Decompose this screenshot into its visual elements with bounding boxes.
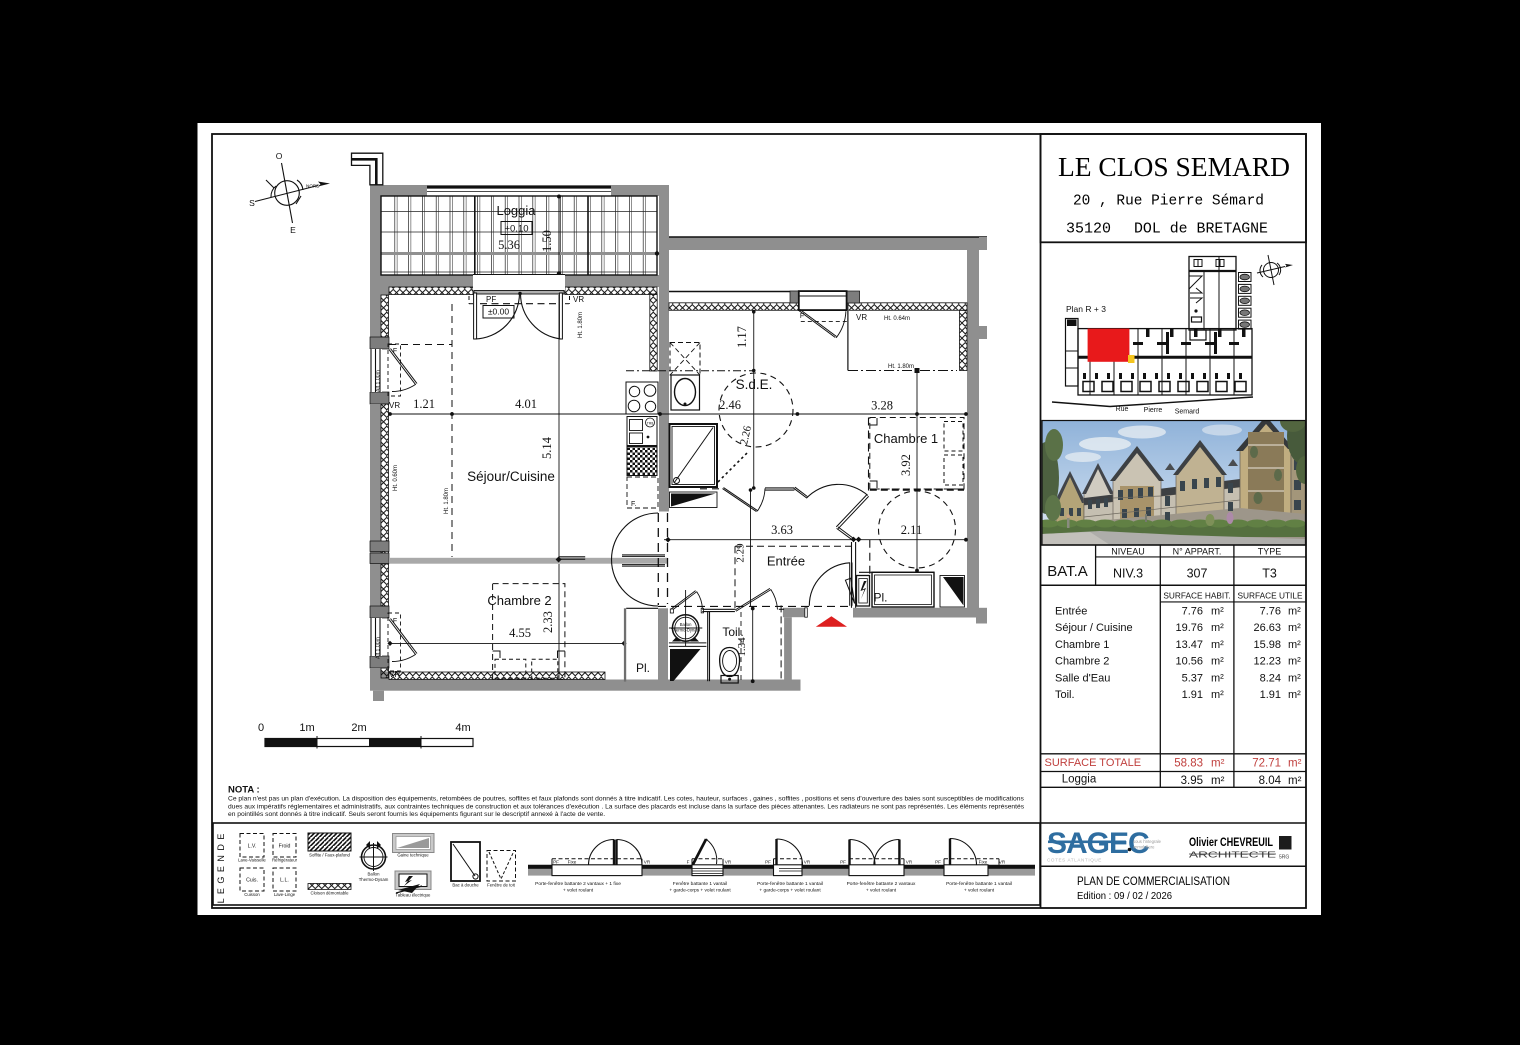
svg-text:ARCHITECTE: ARCHITECTE: [1189, 850, 1277, 860]
svg-text:Plan R + 3: Plan R + 3: [1066, 304, 1106, 314]
svg-text:NORD: NORD: [306, 184, 320, 189]
svg-text:m²: m²: [1288, 606, 1301, 618]
svg-text:Chambre 2: Chambre 2: [487, 593, 551, 608]
svg-text:VR: VR: [644, 859, 651, 864]
svg-text:Thermo-Dynam: Thermo-Dynam: [671, 628, 701, 633]
svg-text:Gaine technique: Gaine technique: [397, 853, 429, 858]
svg-text:35120: 35120: [1066, 221, 1111, 238]
svg-text:Séjour / Cuisine: Séjour / Cuisine: [1055, 622, 1133, 634]
svg-text:F: F: [687, 859, 690, 864]
svg-text:58.83: 58.83: [1174, 758, 1203, 770]
svg-text:Lave-Vaisselle: Lave-Vaisselle: [238, 858, 266, 863]
svg-text:NIVEAU: NIVEAU: [1111, 547, 1145, 557]
svg-text:Porte-fenêtre battante 1 vanta: Porte-fenêtre battante 1 vantail: [946, 881, 1012, 887]
svg-text:4.55: 4.55: [509, 626, 531, 640]
svg-text:1.21: 1.21: [413, 397, 435, 411]
svg-text:Réfrigérateur: Réfrigérateur: [272, 858, 298, 863]
svg-text:m²: m²: [1211, 758, 1225, 770]
svg-text:m²: m²: [1211, 689, 1224, 701]
svg-text:m²: m²: [1211, 606, 1224, 618]
svg-text:Tableau électrique: Tableau électrique: [396, 893, 431, 898]
svg-text:3.95: 3.95: [1181, 775, 1203, 787]
svg-text:3.28: 3.28: [871, 399, 893, 413]
svg-text:Pl.: Pl.: [636, 661, 650, 675]
svg-text:8.24: 8.24: [1260, 672, 1281, 684]
svg-text:VR: VR: [389, 401, 400, 410]
svg-text:Olivier CHEVREUIL: Olivier CHEVREUIL: [1189, 835, 1273, 849]
svg-text:1.34: 1.34: [736, 637, 748, 657]
svg-text:Loggia: Loggia: [496, 203, 536, 218]
svg-text:NOTA :: NOTA :: [228, 785, 260, 796]
svg-text:F: F: [393, 618, 397, 625]
svg-text:Semard: Semard: [1175, 409, 1200, 416]
svg-text:m²: m²: [1211, 775, 1225, 787]
svg-text:TYPE: TYPE: [1258, 547, 1282, 557]
svg-text:Ht. 1.80m: Ht. 1.80m: [578, 312, 584, 338]
svg-text:2.29: 2.29: [735, 543, 747, 563]
svg-text:m²: m²: [1211, 672, 1224, 684]
svg-text:E: E: [290, 225, 296, 235]
svg-text:Alt.1.00m: Alt.1.00m: [376, 637, 382, 659]
svg-text:Fenêtre de toit: Fenêtre de toit: [487, 883, 516, 888]
svg-text:Porte-fenêtre battante 2 vanta: Porte-fenêtre battante 2 vantaux + 1 fix…: [535, 881, 621, 887]
svg-text:+ volet roulant: + volet roulant: [866, 888, 897, 894]
svg-text:Edition : 09 / 02 / 2026: Edition : 09 / 02 / 2026: [1077, 890, 1172, 902]
svg-text:5.14: 5.14: [540, 436, 554, 459]
svg-text:dues aux impératifs réglementa: dues aux impératifs réglementaires et ad…: [228, 803, 1025, 810]
svg-text:12.23: 12.23: [1253, 656, 1281, 668]
svg-text:m²: m²: [1288, 622, 1301, 634]
svg-text:Fixe: Fixe: [568, 859, 577, 864]
svg-text:1.91: 1.91: [1182, 689, 1203, 701]
svg-text:m²: m²: [1288, 639, 1301, 651]
svg-text:O: O: [276, 151, 283, 161]
svg-text:COTES ATLANTIQUE: COTES ATLANTIQUE: [1047, 858, 1102, 863]
svg-text:Thermo-Dysam: Thermo-Dysam: [359, 877, 389, 882]
svg-text:Salle d'Eau: Salle d'Eau: [1055, 672, 1110, 684]
svg-text:PF: PF: [840, 859, 846, 864]
svg-text:TR8: TR8: [647, 422, 654, 426]
svg-text:NIV.3: NIV.3: [1113, 567, 1143, 581]
svg-text:PLAN DE COMMERCIALISATION: PLAN DE COMMERCIALISATION: [1077, 876, 1230, 888]
svg-text:LE CLOS SEMARD: LE CLOS SEMARD: [1058, 152, 1290, 182]
svg-text:20 , Rue Pierre Sémard: 20 , Rue Pierre Sémard: [1073, 193, 1264, 210]
svg-text:Cloison démontable: Cloison démontable: [311, 891, 350, 896]
svg-text:10.56: 10.56: [1175, 656, 1203, 668]
svg-text:SURFACE TOTALE: SURFACE TOTALE: [1045, 757, 1142, 769]
svg-text:m²: m²: [1288, 775, 1302, 787]
svg-text:m²: m²: [1288, 672, 1301, 684]
svg-text:N° APPART.: N° APPART.: [1173, 547, 1222, 557]
svg-text:m²: m²: [1288, 689, 1301, 701]
svg-text:+ garde-corps + volet roulant: + garde-corps + volet roulant: [759, 888, 821, 894]
svg-text:Ht. 1.80m: Ht. 1.80m: [888, 364, 914, 370]
svg-text:+ garde-corps + volet roulant: + garde-corps + volet roulant: [669, 888, 731, 894]
svg-text:Entrée: Entrée: [1055, 606, 1087, 618]
svg-text:Loggia: Loggia: [1062, 774, 1097, 786]
svg-text:Ballon: Ballon: [368, 872, 381, 877]
svg-text:+ volet roulant: + volet roulant: [563, 888, 594, 894]
svg-text:2m: 2m: [351, 722, 366, 734]
svg-text:Rue: Rue: [1116, 406, 1129, 413]
svg-text:±0.00: ±0.00: [488, 307, 509, 317]
svg-text:Entrée: Entrée: [767, 554, 805, 569]
svg-text:1.91: 1.91: [1260, 689, 1281, 701]
svg-text:Fenêtre battante 1 vantail: Fenêtre battante 1 vantail: [673, 881, 727, 887]
svg-text:26.63: 26.63: [1253, 622, 1281, 634]
svg-text:L E G E N D E: L E G E N D E: [216, 833, 226, 904]
svg-text:Ht. 1.80m: Ht. 1.80m: [444, 488, 450, 514]
svg-text:VR: VR: [725, 859, 732, 864]
svg-text:Toil.: Toil.: [722, 625, 743, 639]
svg-text:Alt.1.00m: Alt.1.00m: [376, 370, 382, 392]
svg-text:S: S: [249, 198, 255, 208]
svg-text:19.76: 19.76: [1175, 622, 1203, 634]
svg-text:L.V.: L.V.: [248, 843, 257, 849]
svg-text:Chambre 1: Chambre 1: [874, 431, 938, 446]
svg-text:8.04: 8.04: [1259, 775, 1282, 787]
svg-text:m²: m²: [1211, 639, 1224, 651]
svg-text:Toil.: Toil.: [1055, 689, 1075, 701]
svg-text:VR: VR: [856, 313, 867, 322]
svg-text:PF: PF: [935, 859, 941, 864]
svg-text:Chambre 2: Chambre 2: [1055, 656, 1109, 668]
svg-text:F.: F.: [631, 501, 637, 508]
svg-text:immobiliere: immobiliere: [1133, 845, 1155, 850]
svg-text:Pierre: Pierre: [1144, 407, 1163, 414]
svg-text:en pointillés sont donnés à ti: en pointillés sont donnés à titre indica…: [228, 811, 605, 818]
svg-text:1.50: 1.50: [540, 230, 554, 252]
svg-text:T3: T3: [1262, 567, 1277, 581]
svg-text:15.98: 15.98: [1253, 639, 1281, 651]
svg-text:m²: m²: [1211, 622, 1224, 634]
svg-text:13.47: 13.47: [1175, 639, 1203, 651]
svg-text:3.92: 3.92: [899, 454, 913, 476]
svg-text:0: 0: [258, 722, 264, 734]
svg-text:2.46: 2.46: [719, 398, 741, 412]
svg-text:VR: VR: [906, 859, 913, 864]
svg-text:m²: m²: [1211, 656, 1224, 668]
svg-text:VR: VR: [573, 295, 584, 304]
svg-text:Porte-fenêtre battante 1 vanta: Porte-fenêtre battante 1 vantail: [757, 881, 823, 887]
svg-text:Soffite / Faux-plafond: Soffite / Faux-plafond: [309, 853, 350, 858]
svg-text:Pl.: Pl.: [873, 591, 887, 605]
svg-text:VR: VR: [999, 859, 1006, 864]
svg-text:Séjour/Cuisine: Séjour/Cuisine: [467, 469, 555, 484]
svg-text:Cuisson: Cuisson: [244, 892, 260, 897]
svg-text:3.63: 3.63: [771, 523, 793, 537]
svg-text:5.36: 5.36: [498, 238, 520, 252]
svg-text:2.11: 2.11: [901, 523, 922, 537]
svg-text:307: 307: [1187, 567, 1208, 581]
svg-text:4.01: 4.01: [515, 397, 537, 411]
svg-text:2.33: 2.33: [541, 611, 555, 633]
svg-text:+ volet roulant: + volet roulant: [964, 888, 995, 894]
svg-text:VR: VR: [804, 859, 811, 864]
svg-text:Ht. 0.64m: Ht. 0.64m: [884, 316, 910, 322]
svg-text:PF: PF: [486, 295, 496, 304]
svg-text:Bac à douche: Bac à douche: [452, 883, 479, 888]
svg-text:7.76: 7.76: [1260, 606, 1281, 618]
svg-text:BAT.A: BAT.A: [1047, 563, 1088, 580]
svg-text:4m: 4m: [455, 722, 470, 734]
svg-text:F: F: [393, 348, 397, 355]
svg-text:1.17: 1.17: [735, 326, 749, 348]
svg-text:L.L.: L.L.: [280, 878, 289, 884]
svg-text:m²: m²: [1288, 758, 1302, 770]
svg-text:Lave-Linge: Lave-Linge: [274, 892, 296, 897]
svg-text:5RG: 5RG: [1279, 855, 1289, 861]
svg-text:72.71: 72.71: [1252, 758, 1281, 770]
svg-text:Chambre 1: Chambre 1: [1055, 639, 1109, 651]
svg-text:Porte-fenêtre battante 2 vanta: Porte-fenêtre battante 2 vantaux: [847, 881, 916, 887]
svg-text:PF: PF: [553, 859, 559, 864]
svg-text:m²: m²: [1288, 656, 1301, 668]
svg-text:1m: 1m: [299, 722, 314, 734]
svg-text:SURFACE UTILE: SURFACE UTILE: [1237, 590, 1302, 600]
svg-text:Cuis.: Cuis.: [246, 878, 258, 884]
svg-text:Ce plan n'est pas un plan d'ex: Ce plan n'est pas un plan d'exécution. L…: [228, 796, 1024, 803]
svg-text:Ballon: Ballon: [680, 622, 692, 627]
svg-text:DOL de BRETAGNE: DOL de BRETAGNE: [1134, 221, 1268, 238]
svg-text:PF: PF: [765, 859, 771, 864]
svg-text:Fixe: Fixe: [979, 859, 988, 864]
svg-text:7.76: 7.76: [1182, 606, 1203, 618]
svg-text:SURFACE HABIT.: SURFACE HABIT.: [1163, 590, 1230, 600]
svg-text:sous l’integrale: sous l’integrale: [1133, 839, 1162, 844]
svg-text:5.37: 5.37: [1182, 672, 1203, 684]
svg-text:Froid: Froid: [279, 843, 291, 849]
svg-text:Ht. 0.60m: Ht. 0.60m: [393, 465, 399, 491]
svg-text:F: F: [800, 313, 804, 320]
svg-text:+0.10: +0.10: [504, 224, 528, 235]
